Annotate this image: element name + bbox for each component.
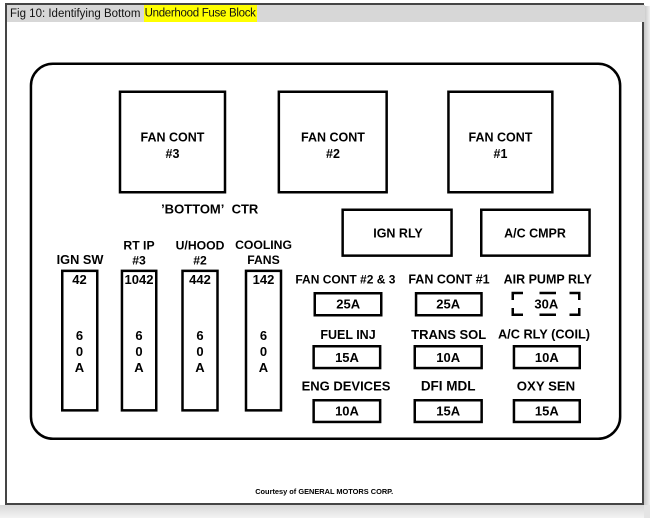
svg-text:A: A xyxy=(75,360,85,375)
svg-text:U/HOOD: U/HOOD xyxy=(176,239,225,253)
svg-text:1042: 1042 xyxy=(125,272,154,287)
svg-text:0: 0 xyxy=(260,344,267,359)
svg-text:A/C RLY (COIL): A/C RLY (COIL) xyxy=(498,326,590,341)
svg-text:IGN SW: IGN SW xyxy=(57,252,105,267)
svg-text:FAN CONT: FAN CONT xyxy=(469,130,533,144)
svg-text:A: A xyxy=(195,360,205,375)
svg-text:A: A xyxy=(259,360,269,375)
svg-text:#3: #3 xyxy=(132,254,146,268)
svg-text:0: 0 xyxy=(196,344,203,359)
svg-text:30A: 30A xyxy=(534,296,558,311)
svg-text:FUEL INJ: FUEL INJ xyxy=(320,328,375,342)
svg-text:10A: 10A xyxy=(335,404,359,419)
svg-text:FAN CONT #2 & 3: FAN CONT #2 & 3 xyxy=(295,273,395,287)
svg-text:FAN CONT #1: FAN CONT #1 xyxy=(408,273,489,287)
svg-text:10A: 10A xyxy=(535,350,559,365)
svg-text:DFI MDL: DFI MDL xyxy=(421,379,476,394)
svg-text:15A: 15A xyxy=(535,404,559,419)
svg-text:6: 6 xyxy=(135,328,142,343)
svg-text:A: A xyxy=(134,360,144,375)
svg-text:0: 0 xyxy=(76,344,83,359)
svg-text:ENG DEVICES: ENG DEVICES xyxy=(302,379,391,394)
svg-text:OXY SEN: OXY SEN xyxy=(517,379,575,394)
svg-text:FANS: FANS xyxy=(247,253,280,267)
svg-text:RT IP: RT IP xyxy=(123,239,154,253)
svg-text:#2: #2 xyxy=(326,147,340,161)
svg-text:#1: #1 xyxy=(494,147,508,161)
svg-text:A/C CMPR: A/C CMPR xyxy=(504,227,566,241)
svg-text:#3: #3 xyxy=(166,147,180,161)
svg-text:#2: #2 xyxy=(193,254,207,268)
svg-text:6: 6 xyxy=(260,328,267,343)
svg-text:IGN RLY: IGN RLY xyxy=(373,227,423,241)
svg-text:25A: 25A xyxy=(436,296,460,311)
svg-text:FAN CONT: FAN CONT xyxy=(141,130,205,144)
svg-text:’BOTTOM’ CTR: ’BOTTOM’ CTR xyxy=(161,202,259,217)
svg-text:15A: 15A xyxy=(335,350,359,365)
svg-text:142: 142 xyxy=(253,272,275,287)
svg-text:10A: 10A xyxy=(436,350,460,365)
svg-text:Courtesy of GENERAL MOTORS COR: Courtesy of GENERAL MOTORS CORP. xyxy=(255,487,393,496)
svg-text:FAN CONT: FAN CONT xyxy=(301,130,365,144)
svg-text:25A: 25A xyxy=(336,296,360,311)
svg-text:TRANS SOL: TRANS SOL xyxy=(411,327,486,342)
svg-text:15A: 15A xyxy=(436,404,460,419)
svg-text:AIR PUMP RLY: AIR PUMP RLY xyxy=(504,273,593,287)
svg-text:42: 42 xyxy=(72,272,86,287)
svg-text:6: 6 xyxy=(196,328,203,343)
svg-text:6: 6 xyxy=(76,328,83,343)
svg-text:COOLING: COOLING xyxy=(235,238,292,252)
svg-text:0: 0 xyxy=(135,344,142,359)
svg-text:442: 442 xyxy=(189,272,211,287)
